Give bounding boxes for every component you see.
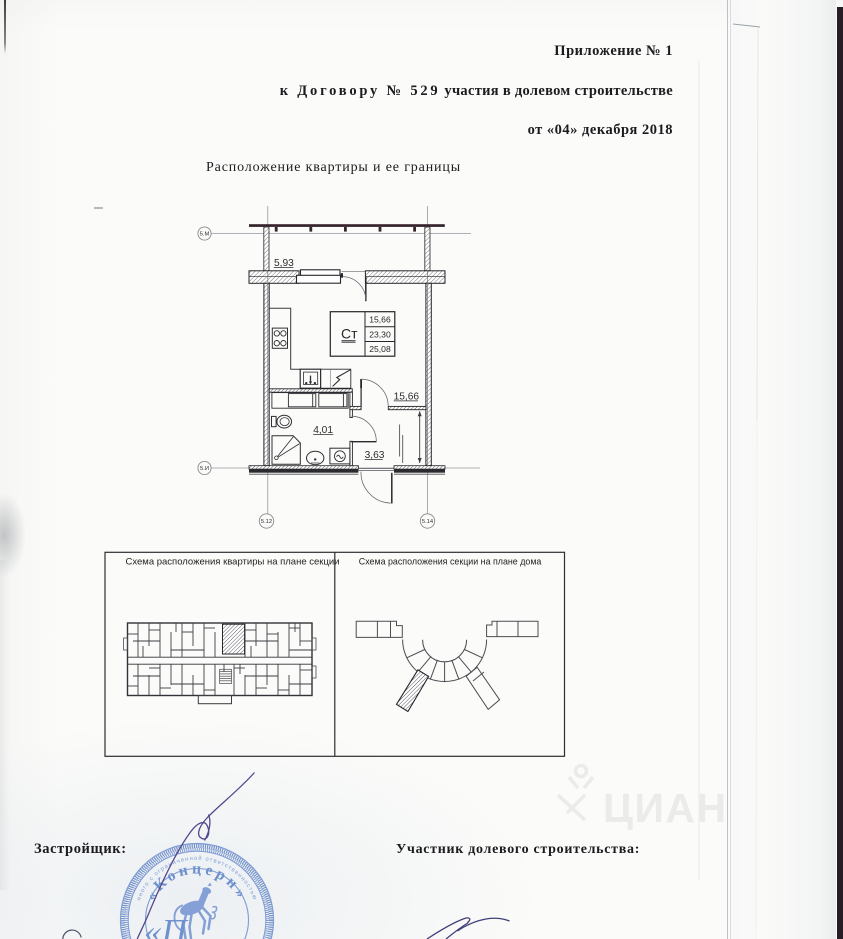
svg-text:23,30: 23,30 [369, 329, 391, 339]
svg-text:ЦИАН: ЦИАН [603, 785, 728, 831]
svg-text:5.14: 5.14 [422, 519, 434, 525]
svg-text:5.12: 5.12 [261, 519, 272, 525]
svg-text:Схема расположения секции на п: Схема расположения секции на плане дома [359, 557, 542, 567]
svg-text:15,66: 15,66 [369, 315, 391, 325]
svg-text:Ст: Ст [341, 326, 358, 342]
svg-text:5.И: 5.И [200, 466, 209, 472]
svg-text:25,08: 25,08 [369, 344, 391, 354]
svg-text:«П: «П [144, 912, 189, 939]
svg-text:«Концерн»: «Концерн» [143, 860, 252, 903]
svg-text:Схема расположения квартиры на: Схема расположения квартиры на плане сек… [126, 557, 340, 568]
svg-text:5.М: 5.М [200, 232, 210, 238]
